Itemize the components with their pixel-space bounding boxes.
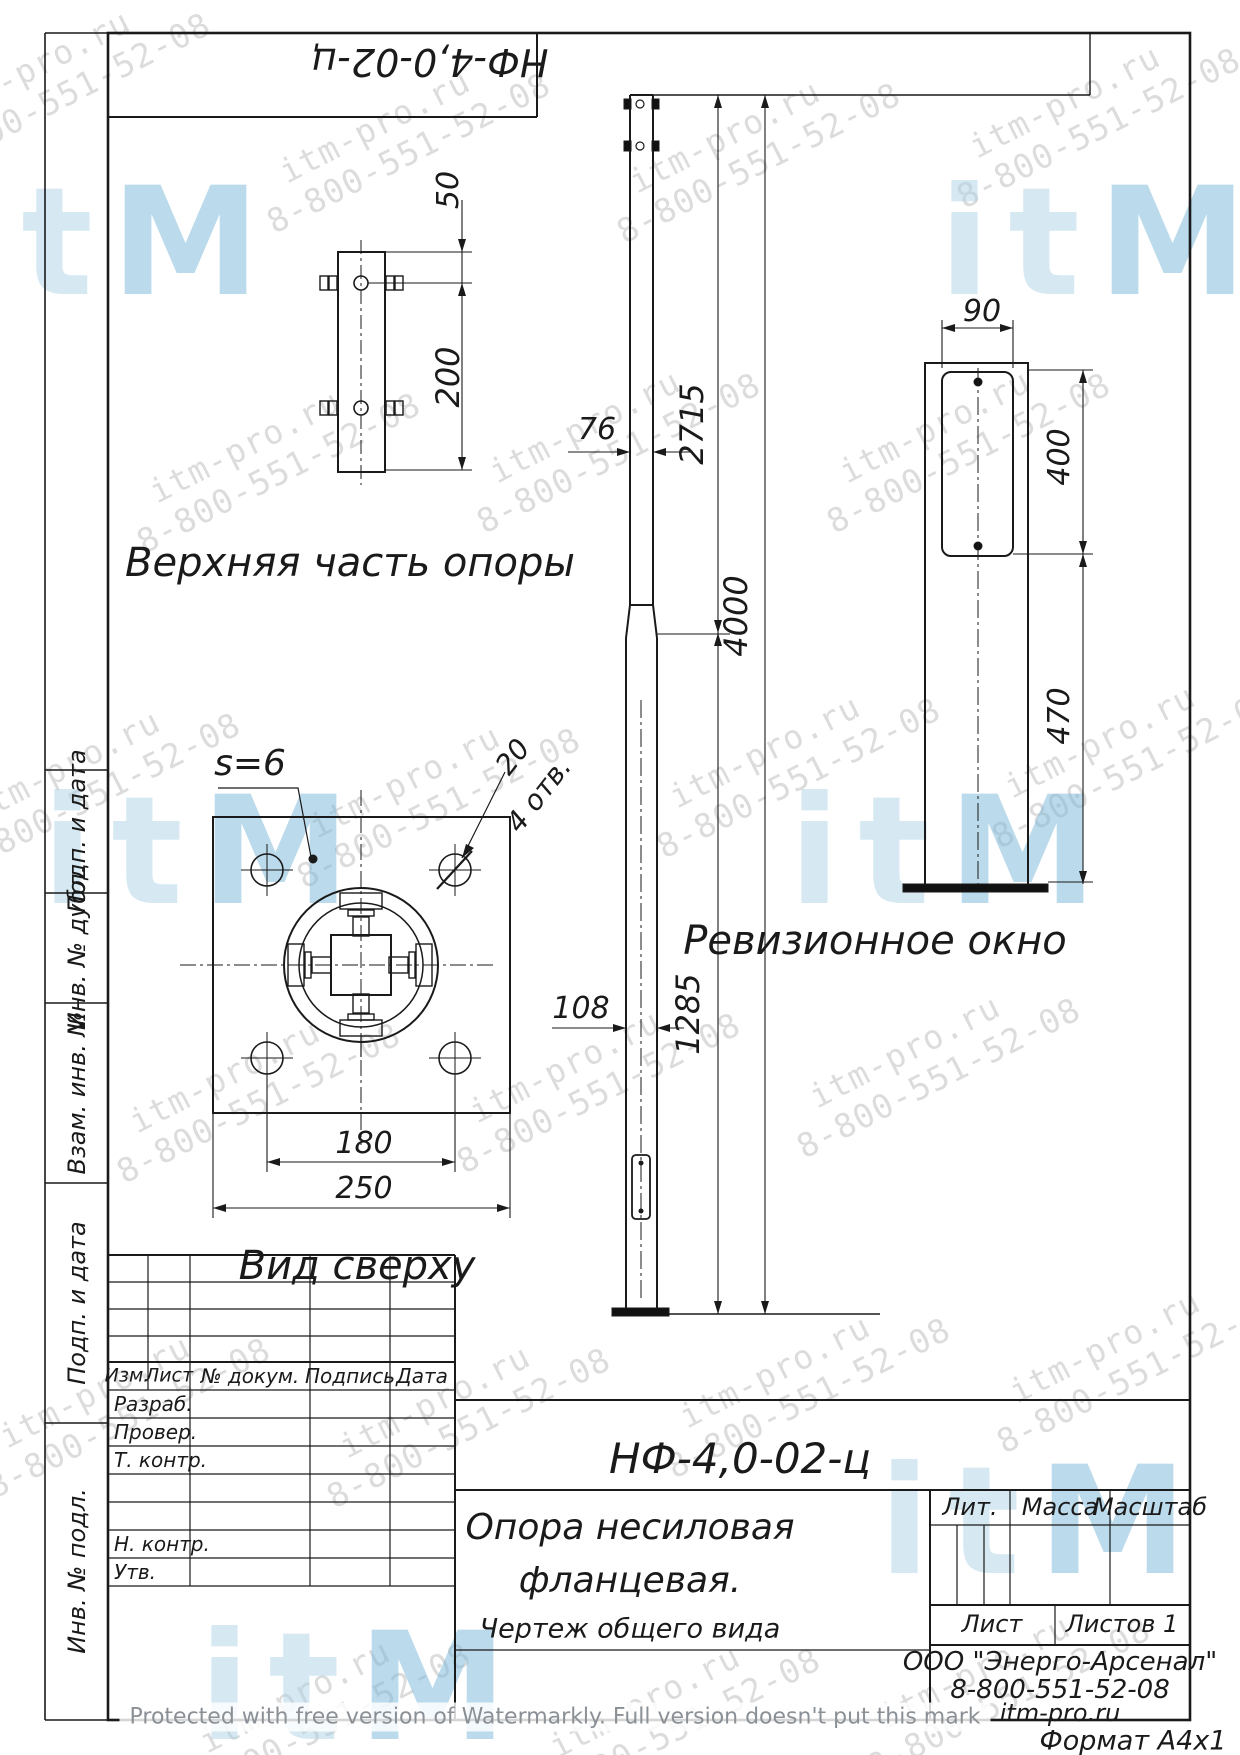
side-label-inv-dubl: Инв. № дубл. <box>65 866 89 1030</box>
dim-470: 470 <box>1045 687 1075 744</box>
titleblock-designation: НФ-4,0-02-ц <box>609 1438 871 1480</box>
header-date: Дата <box>396 1366 448 1386</box>
row-prover: Провер. <box>114 1422 197 1442</box>
row-razrab: Разраб. <box>114 1394 193 1414</box>
revision-window-label: Ревизионное окно <box>683 921 1066 961</box>
titleblock-doc-type: Чертеж общего вида <box>480 1616 781 1643</box>
dim-250: 250 <box>335 1174 392 1204</box>
row-nkontr: Н. контр. <box>114 1534 210 1554</box>
dim-180: 180 <box>335 1129 392 1159</box>
org-site: itm-pro.ru <box>1000 1701 1121 1725</box>
titleblock-name-line1: Опора несиловая <box>465 1510 794 1546</box>
dim-2715: 2715 <box>676 383 708 464</box>
titleblock-name-line2: фланцевая. <box>519 1563 741 1599</box>
row-tkontr: Т. контр. <box>114 1450 207 1470</box>
titleblock-lit-label: Лит. <box>942 1495 997 1519</box>
row-utv: Утв. <box>114 1562 156 1582</box>
titleblock-sheet-label: Лист <box>962 1612 1023 1636</box>
header-list: Лист <box>145 1367 193 1386</box>
dim-50: 50 <box>434 171 464 209</box>
upper-part-view-label: Верхняя часть опоры <box>125 543 575 583</box>
side-label-inv-podl: Инв. № подл. <box>65 1488 89 1654</box>
drawing-sheet: itm-pro.ru8-800-551-52-08itm-pro.ru8-800… <box>0 0 1240 1755</box>
side-label-podp-data-2: Подп. и дата <box>65 1221 89 1385</box>
dim-200: 200 <box>432 346 464 407</box>
dim-108: 108 <box>552 994 609 1024</box>
dim-400: 400 <box>1045 428 1075 485</box>
header-sign: Подпись <box>305 1366 395 1386</box>
dim-90: 90 <box>963 297 1001 327</box>
titleblock-mass-label: Масса <box>1022 1495 1099 1519</box>
side-label-vzam-inv: Взам. инв. № <box>65 1012 89 1175</box>
top-view-label: Вид сверху <box>239 1246 476 1286</box>
dim-76: 76 <box>578 415 616 445</box>
thickness-note: s=6 <box>214 746 286 782</box>
org-name: ООО "Энерго-Арсенал" <box>903 1649 1217 1675</box>
format-note: Формат А4х1 <box>1040 1728 1227 1755</box>
top-designation-rotated: НФ-4,0-02-ц <box>311 43 548 81</box>
titleblock-sheets-label: Листов 1 <box>1066 1612 1179 1636</box>
watermarkly-protect-note: Protected with free version of Watermark… <box>120 1703 991 1732</box>
dim-1285: 1285 <box>672 973 704 1054</box>
header-izm: Изм. <box>105 1367 150 1386</box>
drawing-linework <box>0 0 1240 1755</box>
header-doc: № докум. <box>201 1366 300 1386</box>
titleblock-scale-label: Масштаб <box>1093 1495 1207 1519</box>
dim-4000: 4000 <box>720 575 752 656</box>
